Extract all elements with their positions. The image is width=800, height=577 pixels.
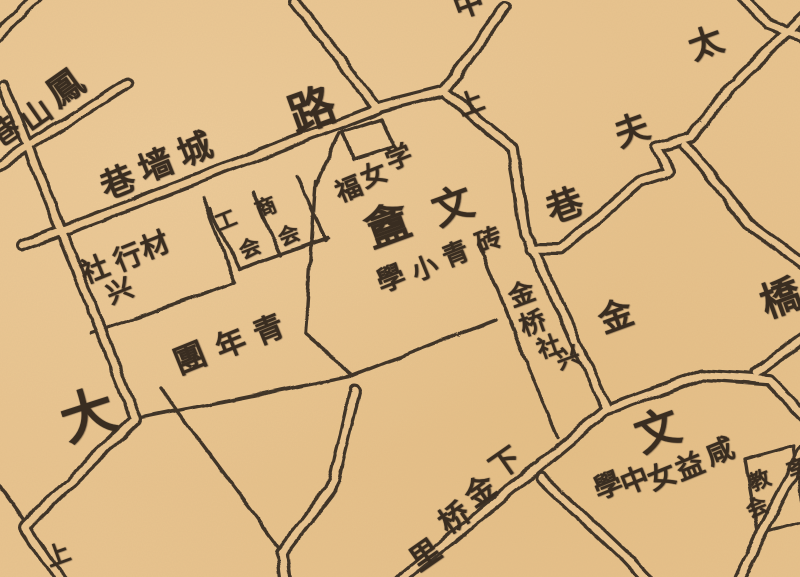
map-canvas: 鳳 山 巷 城 墙 巷 路 中 上 太 夫 巷 金 橋 工 会 商 会 福 女 … <box>0 0 800 577</box>
